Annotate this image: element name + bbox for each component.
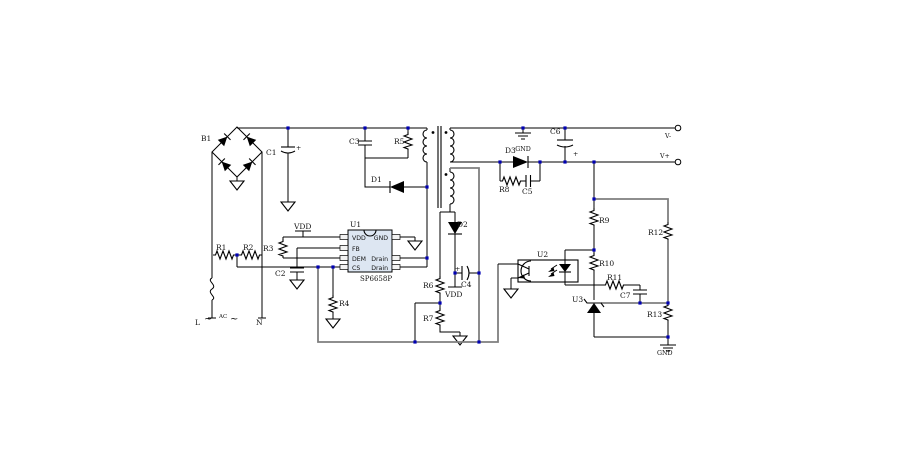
u1-pin-fb: FB: [352, 246, 360, 253]
c5-label: C5: [522, 187, 533, 196]
d2-label: D2: [457, 220, 468, 229]
gnd-output-label: GND: [657, 350, 673, 357]
c2-label: C2: [275, 269, 286, 278]
vdd-primary-label: VDD: [293, 222, 311, 231]
u1-pin-drain2: Drain: [371, 265, 388, 272]
c6-label: C6: [550, 127, 561, 136]
c6-plus: +: [573, 151, 578, 158]
bridge-label: B1: [201, 134, 211, 143]
u1-pin-gnd: GND: [374, 235, 388, 242]
ac-neutral-label: N: [256, 318, 263, 327]
r13-label: R13: [647, 310, 662, 319]
v-plus-terminal: [675, 159, 681, 165]
r5-label: R5: [394, 137, 405, 146]
u1-pin-cs: CS: [352, 265, 360, 272]
r6-label: R6: [423, 281, 434, 290]
r2-label: R2: [243, 243, 254, 252]
v-minus-terminal: [675, 125, 681, 131]
aux-polarity-dot: [445, 173, 448, 176]
u2-label: U2: [537, 250, 548, 259]
vdd-aux-label: VDD: [444, 290, 462, 299]
r9-label: R9: [599, 216, 610, 225]
r1-label: R1: [216, 243, 226, 252]
r7-label: R7: [423, 314, 434, 323]
u1-pin-vdd: VDD: [352, 235, 366, 242]
u1-pin-dem: DEM: [352, 256, 366, 263]
u1-refdes: U1: [350, 220, 361, 229]
r3-label: R3: [263, 244, 274, 253]
u1-pin-drain1: Drain: [371, 256, 388, 263]
d3-label: D3: [505, 146, 516, 155]
r10-label: R10: [599, 259, 614, 268]
r12-label: R12: [648, 228, 663, 237]
page-background: [0, 0, 900, 453]
d1-label: D1: [371, 175, 382, 184]
r8-label: R8: [499, 185, 510, 194]
schematic-canvas: L ~ AC ~ N B1 C1 +: [0, 0, 900, 453]
gnd-secondary-label: GND: [515, 146, 531, 153]
c4-label: C4: [461, 280, 472, 289]
u1-part-number: SP6658P: [360, 275, 392, 283]
secondary-polarity-dot: [445, 131, 448, 134]
v-minus-label: V-: [664, 133, 671, 140]
ac-tilde-1: ~: [204, 314, 212, 325]
r4-label: R4: [339, 299, 350, 308]
c1-label: C1: [266, 148, 277, 157]
primary-polarity-dot: [432, 131, 435, 134]
r11-label: R11: [607, 273, 622, 282]
c7-label: C7: [620, 291, 631, 300]
ac-tilde-2: ~: [230, 314, 238, 325]
v-plus-label: V+: [659, 153, 670, 160]
c3-label: C3: [349, 137, 360, 146]
ac-label: AC: [218, 314, 227, 320]
ac-line-label: L: [195, 318, 200, 327]
c1-plus: +: [296, 145, 301, 152]
u3-label: U3: [572, 295, 583, 304]
